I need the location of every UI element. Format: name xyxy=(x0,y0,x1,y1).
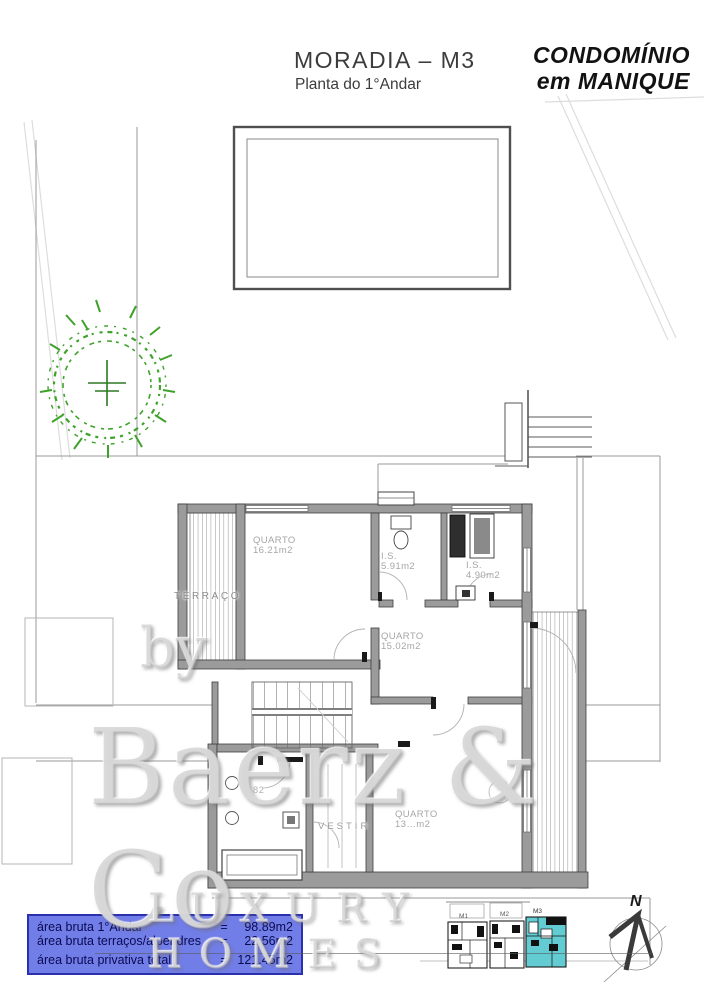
legend-row: área bruta privativa total = 121.45m2 xyxy=(37,954,293,968)
north-compass: N xyxy=(604,893,666,982)
tree xyxy=(40,300,175,458)
page-subtitle: Planta do 1°Andar xyxy=(295,76,421,94)
site-plan-thumbnail: M1 M2 M3 xyxy=(446,902,566,968)
unit-m3-highlighted xyxy=(526,917,566,967)
room-label-quarto-16: QUARTO 16.21m2 xyxy=(253,536,296,556)
brand-logo: CONDOMÍNIO em MANIQUE xyxy=(533,42,690,94)
site-road-line xyxy=(95,953,653,954)
room-label-quarto-15: QUARTO 15.02m2 xyxy=(381,632,424,652)
room-label-quarto-13: QUARTO 13…m2 xyxy=(395,810,438,830)
unit-m1 xyxy=(448,922,487,968)
tree-center-cross xyxy=(88,360,126,406)
balcony xyxy=(222,850,302,880)
page-title: MORADIA – M3 xyxy=(294,47,476,74)
legend-row: área bruta terraços/alpendres = 22.56m2 xyxy=(37,935,293,949)
pool-rectangle xyxy=(234,127,510,289)
area-legend: área bruta 1°Andar = 98.89m2 área bruta … xyxy=(27,914,303,975)
brand-line1: CONDOMÍNIO xyxy=(533,42,690,68)
room-label-is-591: I.S. 5.91m2 xyxy=(381,552,415,572)
unit-label-m2: M2 xyxy=(500,911,509,918)
room-label-vestir: VESTIR xyxy=(318,822,370,832)
north-label: N xyxy=(630,893,642,910)
brand-line2: em MANIQUE xyxy=(533,68,690,94)
stairs xyxy=(252,682,352,748)
unit-m2 xyxy=(490,921,524,968)
room-label-obscured: …82 xyxy=(243,786,264,796)
unit-label-m1: M1 xyxy=(459,913,468,920)
floor-plan-drawing: M1 M2 M3 N xyxy=(0,0,704,1000)
legend-row: área bruta 1°Andar = 98.89m2 xyxy=(37,921,293,935)
unit-label-m3: M3 xyxy=(533,908,542,915)
room-label-is-490: I.S. 4.90m2 xyxy=(466,561,500,581)
floor-plan-page: MORADIA – M3 Planta do 1°Andar CONDOMÍNI… xyxy=(0,0,704,1000)
room-label-terraco: TERRAÇO xyxy=(174,592,241,602)
